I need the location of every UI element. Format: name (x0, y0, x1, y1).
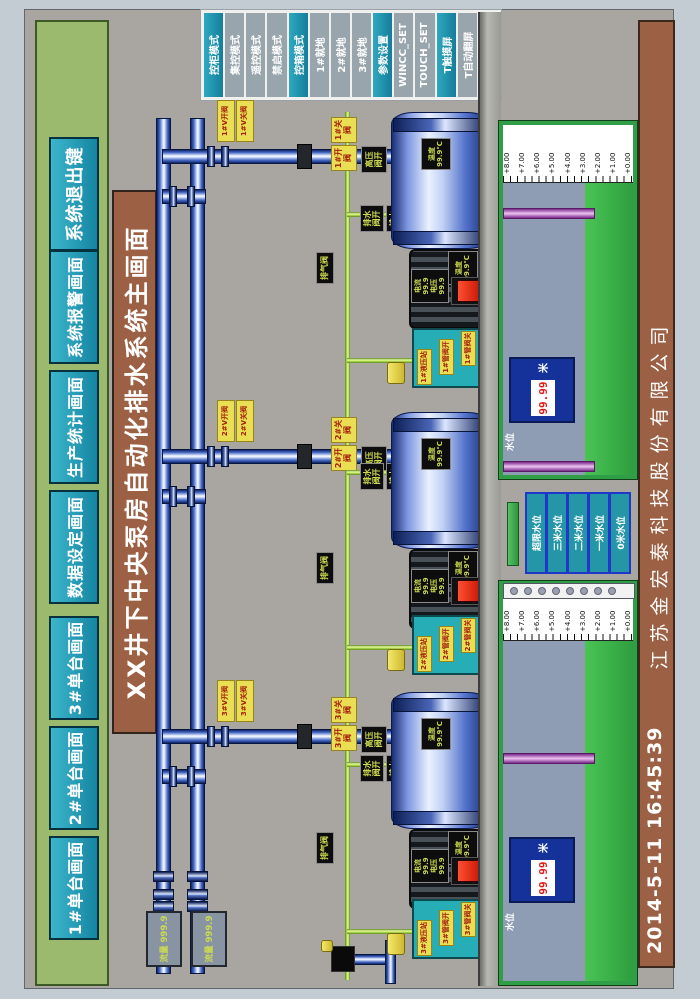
pump1-branch-flange (169, 186, 177, 207)
pump1-riser-flange (207, 146, 215, 167)
nav-button-pump2[interactable]: 2#单台画面 (49, 726, 99, 830)
mode-button-2-local[interactable]: 2#就地 (331, 13, 350, 97)
tank2-scale-2: +2.00 (595, 600, 602, 632)
pump1-body-temp-value: 99.9℃ (436, 141, 444, 167)
hmi-content-area: 1#单台画面 2#单台画面 3#单台画面 数据设定画面 生产统计画面 系统报警画… (24, 9, 674, 989)
pump3-hv-valve-tag: 高压阀开 (361, 726, 387, 753)
sump-tank-1: +8.00+7.00+6.00+5.00+4.00+3.00+2.00+1.00… (499, 121, 637, 479)
pump1-body-temp-tag: 温度99.9℃ (421, 138, 451, 170)
pump3-accumulator (387, 933, 405, 955)
tank1-scale-8: +8.00 (504, 126, 511, 174)
pump2-valve2-open-tag: 2#开阀 (331, 445, 357, 471)
pump1-accumulator (387, 362, 405, 384)
pump2-drain-open-tag: 排水阀开 (360, 463, 384, 490)
pump3-riser-flange (221, 726, 229, 747)
pump1-body-temp-label: 温度 (428, 141, 436, 167)
pump3-valve-open-tag: 3#V开阀 (217, 680, 235, 722)
main-a-valve-flange (153, 871, 174, 882)
hmi-screenshot: 1#单台画面 2#单台画面 3#单台画面 数据设定画面 生产统计画面 系统报警画… (0, 0, 700, 999)
pump1-hyd-tag-1: 1#液压站 (417, 349, 432, 385)
tank2-scale-5: +5.00 (549, 600, 556, 632)
footer-company: 江苏金宏泰科技股份有限公司 (645, 22, 672, 966)
pump1-riser-pipe (162, 149, 393, 164)
pump3-branch-flange (169, 766, 177, 787)
main-b-valve-flange (187, 889, 208, 900)
tank2-scale-ticks (503, 632, 633, 641)
pump3-end-cap (393, 811, 488, 825)
pump2-hyd-tag-2: 2#管阀开 (439, 626, 454, 662)
tank1-level-value: 99.99 (531, 380, 555, 416)
pump2-vent-valve-tag: 排气阀 (316, 552, 334, 584)
pump2-riser-flange (207, 446, 215, 467)
pump3-riser-pipe (162, 729, 393, 744)
pump2-electric-tag: 电流 99.9电压 99.9 (411, 569, 449, 603)
tank2-level-value: 99.99 (531, 860, 555, 896)
nav-button-pump3[interactable]: 3#单台画面 (49, 616, 99, 720)
pump1-valve2-close-tag: 1#关阀 (331, 117, 357, 143)
pump1-hyd-tag-3: 1#管阀关 (461, 331, 476, 366)
tank2-water (585, 641, 633, 981)
pump1-valve-open-tag: 1#V开阀 (217, 100, 235, 142)
pump2-end-cap (393, 418, 488, 432)
tank1-scale-2: +2.00 (595, 126, 602, 174)
mode-button-cabinet[interactable]: 控柜模式 (204, 13, 223, 97)
tank1-scale-5: +5.00 (549, 126, 556, 174)
flow-meter-1: 流量 999.9 (146, 911, 182, 967)
pump2-accumulator (387, 649, 405, 671)
pump1-branch-flange (187, 186, 195, 207)
pump1-voltage: 电压 99.9 (430, 270, 446, 302)
pump2-hyd-tag-3: 2#管阀关 (461, 618, 476, 653)
nav-button-system-alarm[interactable]: 系统报警画面 (49, 250, 99, 364)
page-title: XX井下中央泵房自动化排水系统主画面 (112, 190, 157, 734)
pump1-valve2-open-tag: 1#开阀 (331, 145, 357, 171)
main-b-valve-flange (187, 871, 208, 882)
nav-button-pump1[interactable]: 1#单台画面 (49, 836, 99, 940)
pump1-hv-valve-tag: 高压阀开 (361, 146, 387, 173)
pump3-suction-in-tank (503, 753, 595, 764)
mode-button-remote[interactable]: 遥控模式 (246, 13, 265, 97)
level-column-top-bar (507, 502, 519, 566)
pump3-body-temp-tag: 温度99.9℃ (421, 718, 451, 750)
tank2-scale-0: +0.00 (625, 600, 632, 632)
mode-button-central[interactable]: 集控模式 (225, 13, 244, 97)
pump1-riser-flange (221, 146, 229, 167)
pump2-current: 电流 99.9 (414, 570, 430, 602)
hmi-stage: 1#单台画面 2#单台画面 3#单台画面 数据设定画面 生产统计画面 系统报警画… (0, 0, 700, 999)
mode-button-param-set[interactable]: 参数设置 (373, 13, 392, 97)
main-pipe-a (156, 118, 171, 974)
pump1-suction-in-tank (503, 208, 595, 219)
level-marker-overlimit[interactable]: 超限水位 (525, 492, 547, 574)
drain-assembly-box (331, 946, 355, 972)
pump2-suction-in-tank (503, 461, 595, 472)
pump1-electric-tag: 电流 99.9电压 99.9 (411, 269, 449, 303)
tank2-scale-8: +8.00 (504, 600, 511, 632)
pump3-voltage: 电压 99.9 (430, 850, 446, 882)
pump1-vent-valve-tag: 排气阀 (316, 252, 334, 284)
floor-strip (478, 12, 501, 986)
pump3-valve-close-tag: 3#V关阀 (236, 680, 254, 722)
pump2-valve-open-tag: 2#V开阀 (217, 400, 235, 442)
tank1-water (585, 183, 633, 475)
nav-button-data-setting[interactable]: 数据设定画面 (49, 490, 99, 604)
system-exit-button[interactable]: 系统退出键 (49, 137, 99, 251)
main-pipe-b (190, 118, 205, 974)
mode-panel: 控柜模式 集控模式 遥控模式 禁启模式 控箱模式 1#就地 2#就地 3#就地 … (200, 9, 502, 101)
mode-button-1-local[interactable]: 1#就地 (310, 13, 329, 97)
tank2-scale-7: +7.00 (519, 600, 526, 632)
mode-button-auto-page[interactable]: T自动翻屏 (458, 13, 477, 97)
pump2-check-valve (297, 444, 312, 469)
pump3-hyd-tag-2: 3#管阀开 (439, 910, 454, 946)
mode-button-start-forbid[interactable]: 禁启模式 (267, 13, 286, 97)
tank1-scale-7: +7.00 (519, 126, 526, 174)
level-marker-3m[interactable]: 三米水位 (546, 492, 568, 574)
tank1-scale-3: +3.00 (580, 126, 587, 174)
mode-button-box[interactable]: 控箱模式 (289, 13, 308, 97)
pump2-body-temp-tag: 温度99.9℃ (421, 438, 451, 470)
pump2-body-temp-label: 温度 (428, 441, 436, 467)
pump1-drain-open-tag: 排水阀开 (360, 205, 384, 232)
pump2-end-cap (393, 531, 488, 545)
tank2-level-label: 水位 (503, 913, 516, 931)
tank1-level-label: 水位 (503, 433, 516, 451)
pump3-body-temp-label: 温度 (428, 721, 436, 747)
flow-meter-2: 流量 999.9 (191, 911, 227, 967)
level-marker-1m[interactable]: 一米水位 (588, 492, 610, 574)
pump2-branch-flange (187, 486, 195, 507)
tank1-scale-ticks (503, 174, 633, 183)
pump3-check-valve (297, 724, 312, 749)
tank2-scale-labels: +8.00+7.00+6.00+5.00+4.00+3.00+2.00+1.00… (503, 599, 633, 633)
tank2-level-unit: 米 (535, 843, 550, 853)
tank2-wall-rivets (503, 583, 635, 599)
mode-button-wincc-set[interactable]: WINCC_SET (394, 13, 413, 97)
pump3-current: 电流 99.9 (414, 850, 430, 882)
nav-bar: 1#单台画面 2#单台画面 3#单台画面 数据设定画面 生产统计画面 系统报警画… (35, 20, 109, 986)
pump2-riser-pipe (162, 449, 393, 464)
pump3-body (391, 692, 490, 829)
pump3-branch-flange (187, 766, 195, 787)
level-marker-0m[interactable]: 0米水位 (609, 492, 631, 574)
pump1-valve-close-tag: 1#V关阀 (236, 100, 254, 142)
mode-button-touchscreen[interactable]: T触摸屏 (437, 13, 456, 97)
pump3-body-temp-value: 99.9℃ (436, 721, 444, 747)
tank2-scale-3: +3.00 (580, 600, 587, 632)
pump3-hyd-tag-3: 3#管阀关 (461, 902, 476, 937)
pump3-electric-tag: 电流 99.9电压 99.9 (411, 849, 449, 883)
pump3-drain-open-tag: 排水阀开 (360, 755, 384, 782)
drain-assembly-indicator (321, 940, 333, 952)
pump2-valve2-close-tag: 2#关阀 (331, 417, 357, 443)
pump2-voltage: 电压 99.9 (430, 570, 446, 602)
pump1-body (391, 112, 490, 249)
tank1-scale-0: +0.00 (625, 126, 632, 174)
pump3-hyd-tag-1: 3#液压站 (417, 920, 432, 956)
pump1-end-cap (393, 231, 488, 245)
tank2-scale-4: +4.00 (565, 600, 572, 632)
aux-green-pipe (345, 112, 350, 980)
pump1-check-valve (297, 144, 312, 169)
tank2-scale-1: +1.00 (610, 600, 617, 632)
mode-button-3-local[interactable]: 3#就地 (352, 13, 371, 97)
pump3-valve2-close-tag: 3#关阀 (331, 697, 357, 723)
tank2-scale-6: +6.00 (534, 600, 541, 632)
level-marker-2m[interactable]: 二米水位 (567, 492, 589, 574)
main-a-valve-flange (153, 889, 174, 900)
pump3-valve2-open-tag: 3#开阀 (331, 725, 357, 751)
tank1-scale-4: +4.00 (565, 126, 572, 174)
pump2-body (391, 412, 490, 549)
tank1-scale-labels: +8.00+7.00+6.00+5.00+4.00+3.00+2.00+1.00… (503, 125, 633, 175)
pump2-branch-flange (169, 486, 177, 507)
pump2-body-temp-value: 99.9℃ (436, 441, 444, 467)
pump1-hyd-tag-2: 1#管阀开 (439, 339, 454, 375)
pump3-vent-valve-tag: 排气阀 (316, 832, 334, 864)
tank2-level-readout: 99.99 米 (509, 837, 575, 903)
pump2-hyd-tag-1: 2#液压站 (417, 636, 432, 672)
pump3-end-cap (393, 698, 488, 712)
pump1-end-cap (393, 118, 488, 132)
pump2-valve-close-tag: 2#V关阀 (236, 400, 254, 442)
mode-button-touch-set[interactable]: TOUCH_SET (415, 13, 434, 97)
pump3-riser-flange (207, 726, 215, 747)
tank1-level-unit: 米 (535, 363, 550, 373)
pump2-riser-flange (221, 446, 229, 467)
footer-bar: 2014-5-11 16:45:39 江苏金宏泰科技股份有限公司 (638, 20, 675, 968)
tank1-level-readout: 99.99 米 (509, 357, 575, 423)
tank1-scale-6: +6.00 (534, 126, 541, 174)
sump-tank-2: +8.00+7.00+6.00+5.00+4.00+3.00+2.00+1.00… (499, 581, 637, 985)
tank1-scale-1: +1.00 (610, 126, 617, 174)
nav-button-production-stats[interactable]: 生产统计画面 (49, 370, 99, 484)
pump1-current: 电流 99.9 (414, 270, 430, 302)
